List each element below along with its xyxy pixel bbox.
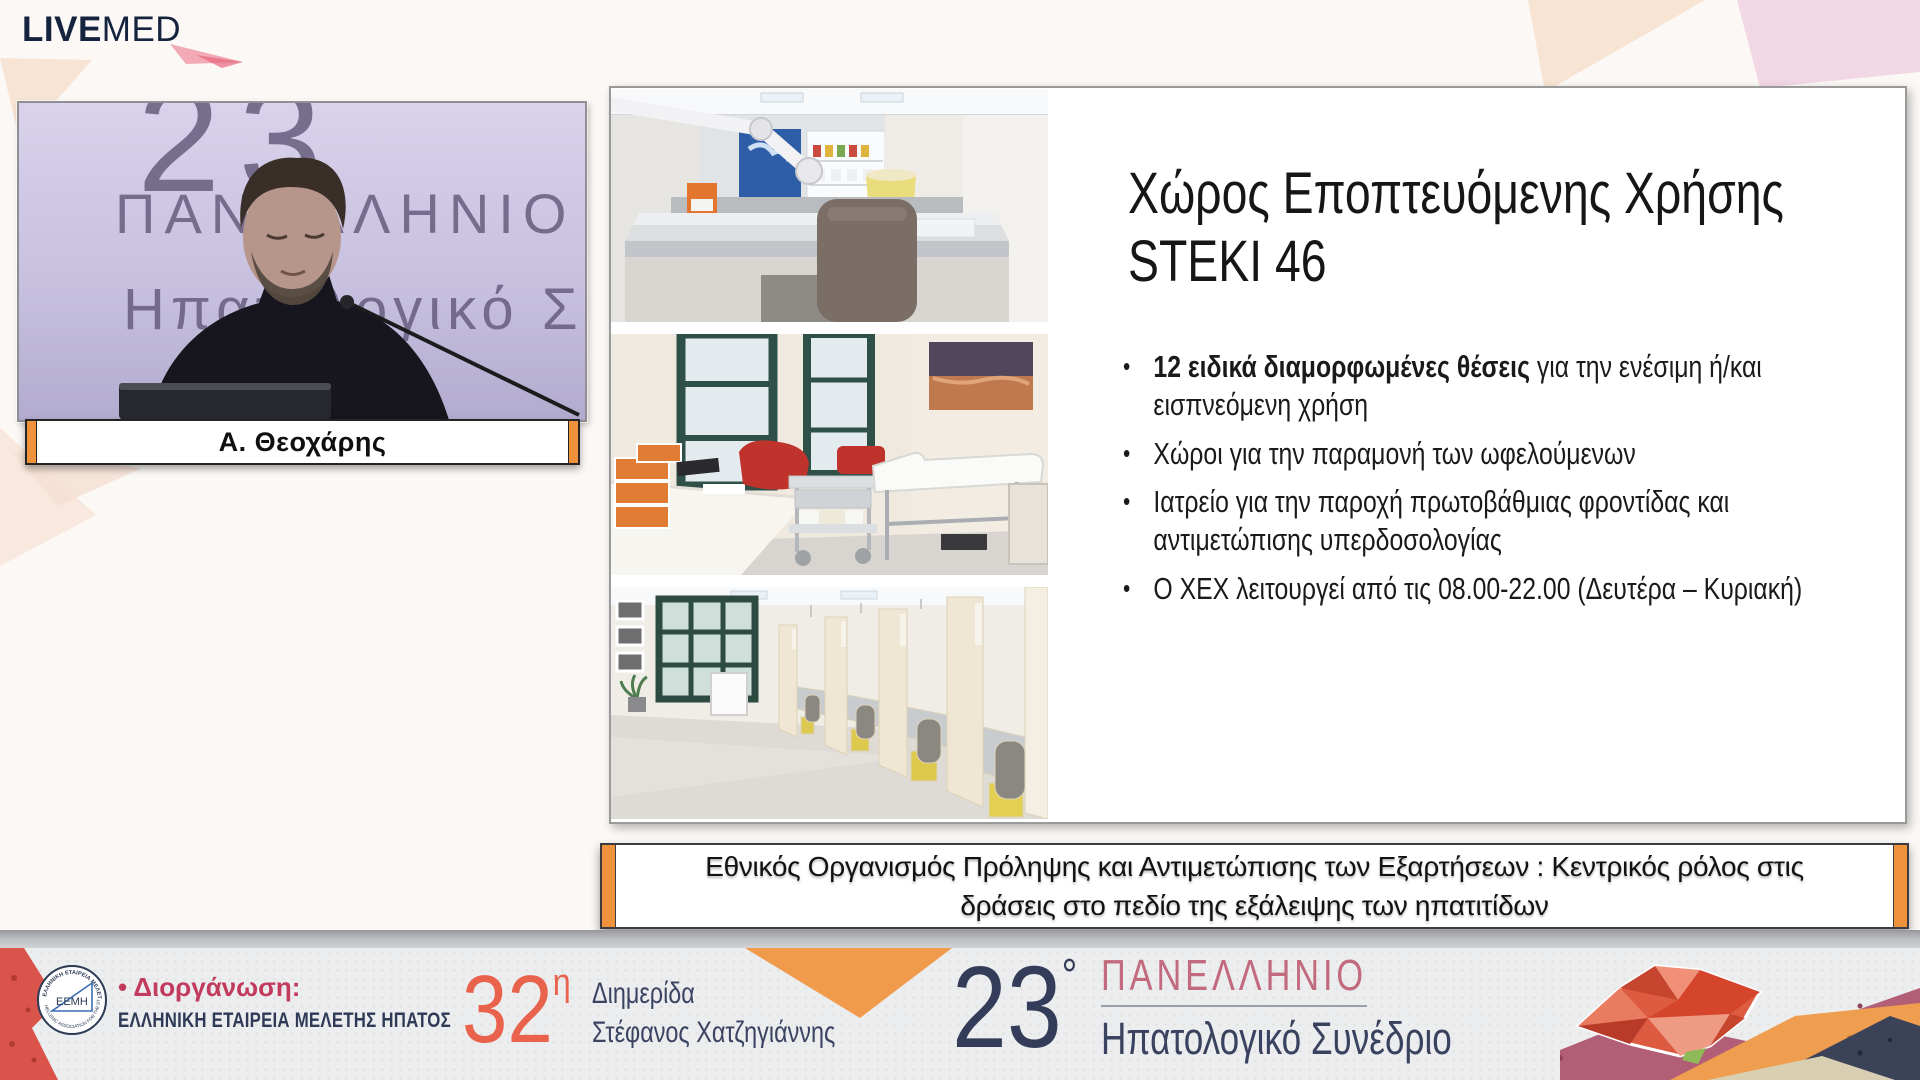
bullet-text: Ο ΧΕΧ λειτουργεί από τις 08.00-22.00 (Δε… (1153, 570, 1802, 608)
eemh-logo: ΕΛΛΗΝΙΚΗ ΕΤΑΙΡΕΙΑ ΜΕΛΕΤΗΣ ΗΠΑΤΟΣ HELLENI… (36, 964, 108, 1036)
event-32-block: 32η Διημερίδα Στέφανος Χατζηγιάννης (462, 966, 904, 1054)
bullet-dot: • (1123, 435, 1137, 473)
event-32-titles: Διημερίδα Στέφανος Χατζηγιάννης (592, 966, 835, 1054)
event-23-degree: ° (1062, 949, 1078, 1001)
slide-photo-injection-booth (611, 89, 1048, 322)
conference-footer: ΕΛΛΗΝΙΚΗ ΕΤΑΙΡΕΙΑ ΜΕΛΕΤΗΣ ΗΠΑΤΟΣ HELLENI… (0, 948, 1920, 1080)
banner-line1: Εθνικός Οργανισμός Πρόληψης και Αντιμετώ… (705, 847, 1804, 886)
event-32-line2: Στέφανος Χατζηγιάννης (592, 1013, 835, 1052)
event-23-line1: ΠΑΝΕΛΛΗΝΙΟ (1101, 954, 1367, 1007)
slide-bullet: •Ο ΧΕΧ λειτουργεί από τις 08.00-22.00 (Δ… (1123, 570, 1871, 608)
livemed-logo: LIVEMED (22, 10, 181, 50)
session-title-banner: Εθνικός Οργανισμός Πρόληψης και Αντιμετώ… (600, 843, 1909, 929)
slide-title-line1: Χώρος Εποπτευόμενης Χρήσης (1128, 160, 1808, 228)
slide-photo-exam-room (611, 334, 1048, 575)
slide-title-line2: STEKI 46 (1128, 228, 1808, 296)
bullet-dot: • (1123, 483, 1137, 559)
event-32-line1: Διημερίδα (592, 974, 835, 1013)
organizer-name: ΕΛΛΗΝΙΚΗ ΕΤΑΙΡΕΙΑ ΜΕΛΕΤΗΣ ΗΠΑΤΟΣ (118, 1009, 451, 1033)
event-23-line2: Ηπατολογικό Συνέδριο (1101, 1013, 1452, 1065)
banner-line2: δράσεις στο πεδίο της εξάλειψης των ηπατ… (960, 886, 1548, 925)
nameplate-right-accent (568, 421, 578, 463)
banner-right-accent (1893, 845, 1907, 927)
nameplate-left-accent (27, 421, 37, 463)
presentation-slide: Χώρος Εποπτευόμενης Χρήσης STEKI 46 •12 … (609, 86, 1907, 824)
livemed-logo-med: MED (102, 10, 181, 49)
eemh-center-text: ΕΕΜΗ (56, 996, 88, 1008)
event-32-number: 32η (462, 966, 571, 1054)
liver-artwork (1560, 948, 1920, 1080)
event-23-number: 23° (952, 954, 1077, 1065)
event-32-ordinal: η (553, 962, 571, 1004)
bullet-text: 12 ειδικά διαμορφωμένες θέσεις για την ε… (1153, 348, 1871, 424)
speaker-nameplate: Α. Θεοχάρης (25, 419, 580, 465)
speaker-video-feed: 23 ΠΑΝΕΛΛΗΝΙΟ Ηπατολογικό Σ (17, 101, 587, 422)
event-23-titles: ΠΑΝΕΛΛΗΝΙΟ Ηπατολογικό Συνέδριο (1101, 954, 1452, 1065)
event-23-block: 23° ΠΑΝΕΛΛΗΝΙΟ Ηπατολογικό Συνέδριο (952, 954, 1551, 1065)
slide-bullet: •Ιατρείο για την παροχή πρωτοβάθμιας φρο… (1123, 483, 1871, 559)
slide-bullet: •Χώροι για την παραμονή των ωφελούμενων (1123, 435, 1871, 473)
slide-photo-booth-row (611, 587, 1048, 819)
bullet-dot: • (1123, 570, 1137, 608)
livemed-logo-live: LIVE (22, 10, 102, 49)
bullet-text: Χώροι για την παραμονή των ωφελούμενων (1153, 435, 1635, 473)
slide-title: Χώρος Εποπτευόμενης Χρήσης STEKI 46 (1128, 160, 1808, 297)
speaker-name: Α. Θεοχάρης (219, 427, 387, 458)
slide-bullets: •12 ειδικά διαμορφωμένες θέσεις για την … (1123, 348, 1871, 619)
stream-canvas: LIVEMED 23 ΠΑΝΕΛΛΗΝΙΟ Ηπατολογικό Σ (0, 0, 1920, 1080)
bullet-dot: • (1123, 348, 1137, 424)
slide-bullet: •12 ειδικά διαμορφωμένες θέσεις για την … (1123, 348, 1871, 424)
speaker-video-scene: 23 ΠΑΝΕΛΛΗΝΙΟ Ηπατολογικό Σ (19, 103, 585, 420)
bullet-text: Ιατρείο για την παροχή πρωτοβάθμιας φρον… (1153, 483, 1871, 559)
banner-left-accent (602, 845, 616, 927)
